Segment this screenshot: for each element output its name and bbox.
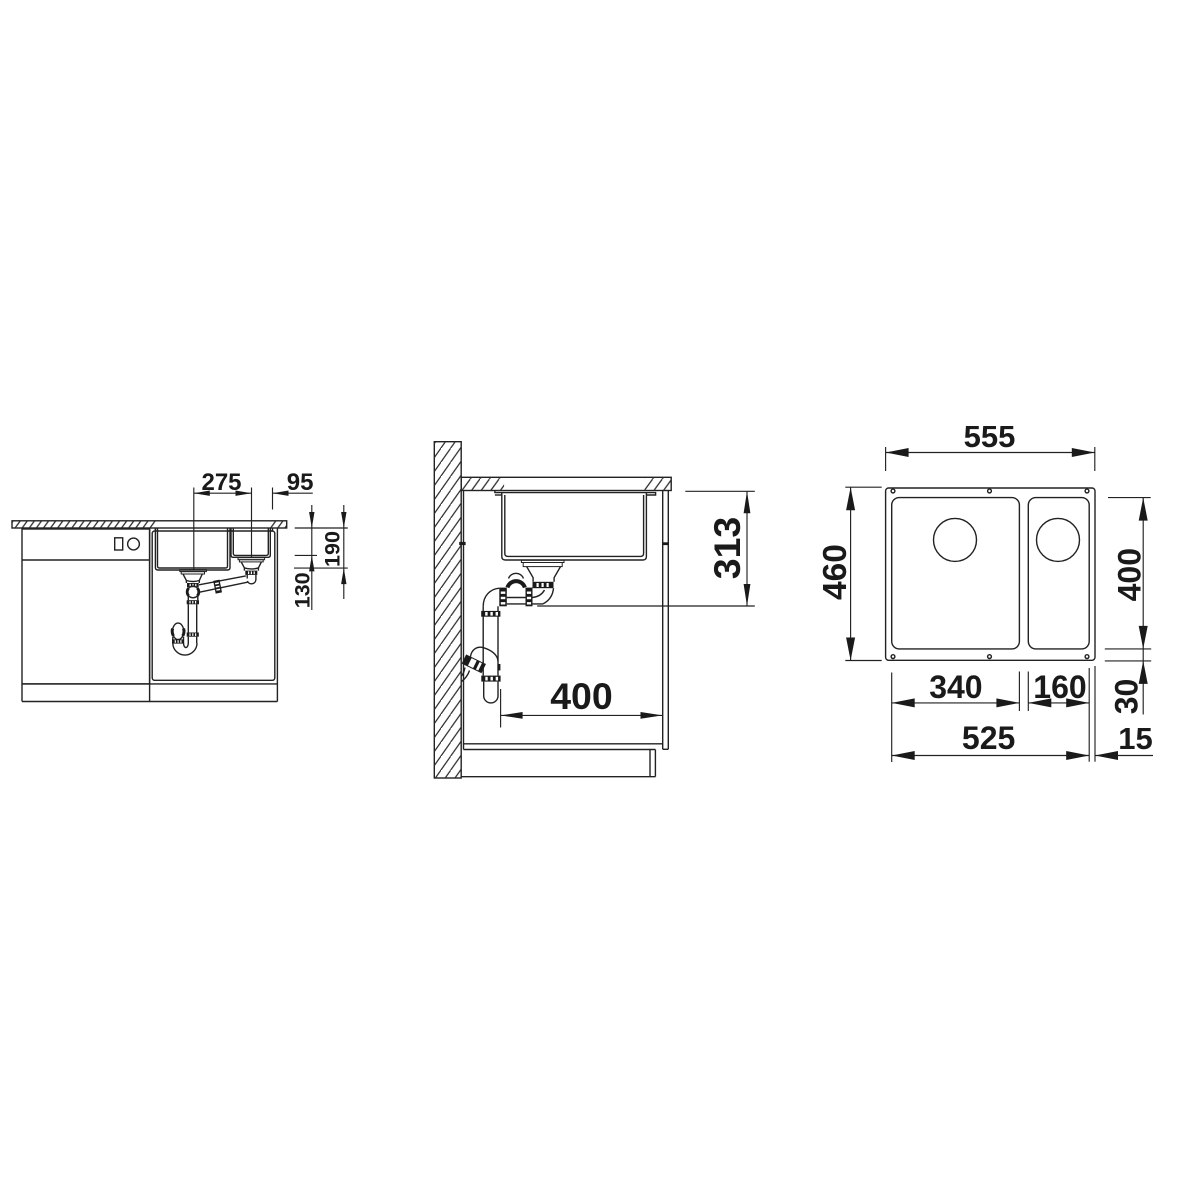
svg-text:555: 555: [964, 419, 1016, 454]
svg-text:275: 275: [201, 469, 241, 496]
svg-text:190: 190: [320, 531, 344, 567]
svg-text:400: 400: [550, 675, 613, 717]
svg-text:340: 340: [929, 669, 982, 705]
svg-text:130: 130: [291, 572, 315, 608]
svg-text:30: 30: [1109, 679, 1145, 715]
svg-text:313: 313: [706, 517, 748, 580]
svg-text:400: 400: [1111, 548, 1147, 601]
svg-text:460: 460: [817, 544, 854, 600]
svg-text:160: 160: [1033, 669, 1086, 705]
svg-text:95: 95: [287, 469, 314, 496]
svg-text:525: 525: [962, 720, 1015, 756]
svg-text:15: 15: [1118, 721, 1152, 756]
